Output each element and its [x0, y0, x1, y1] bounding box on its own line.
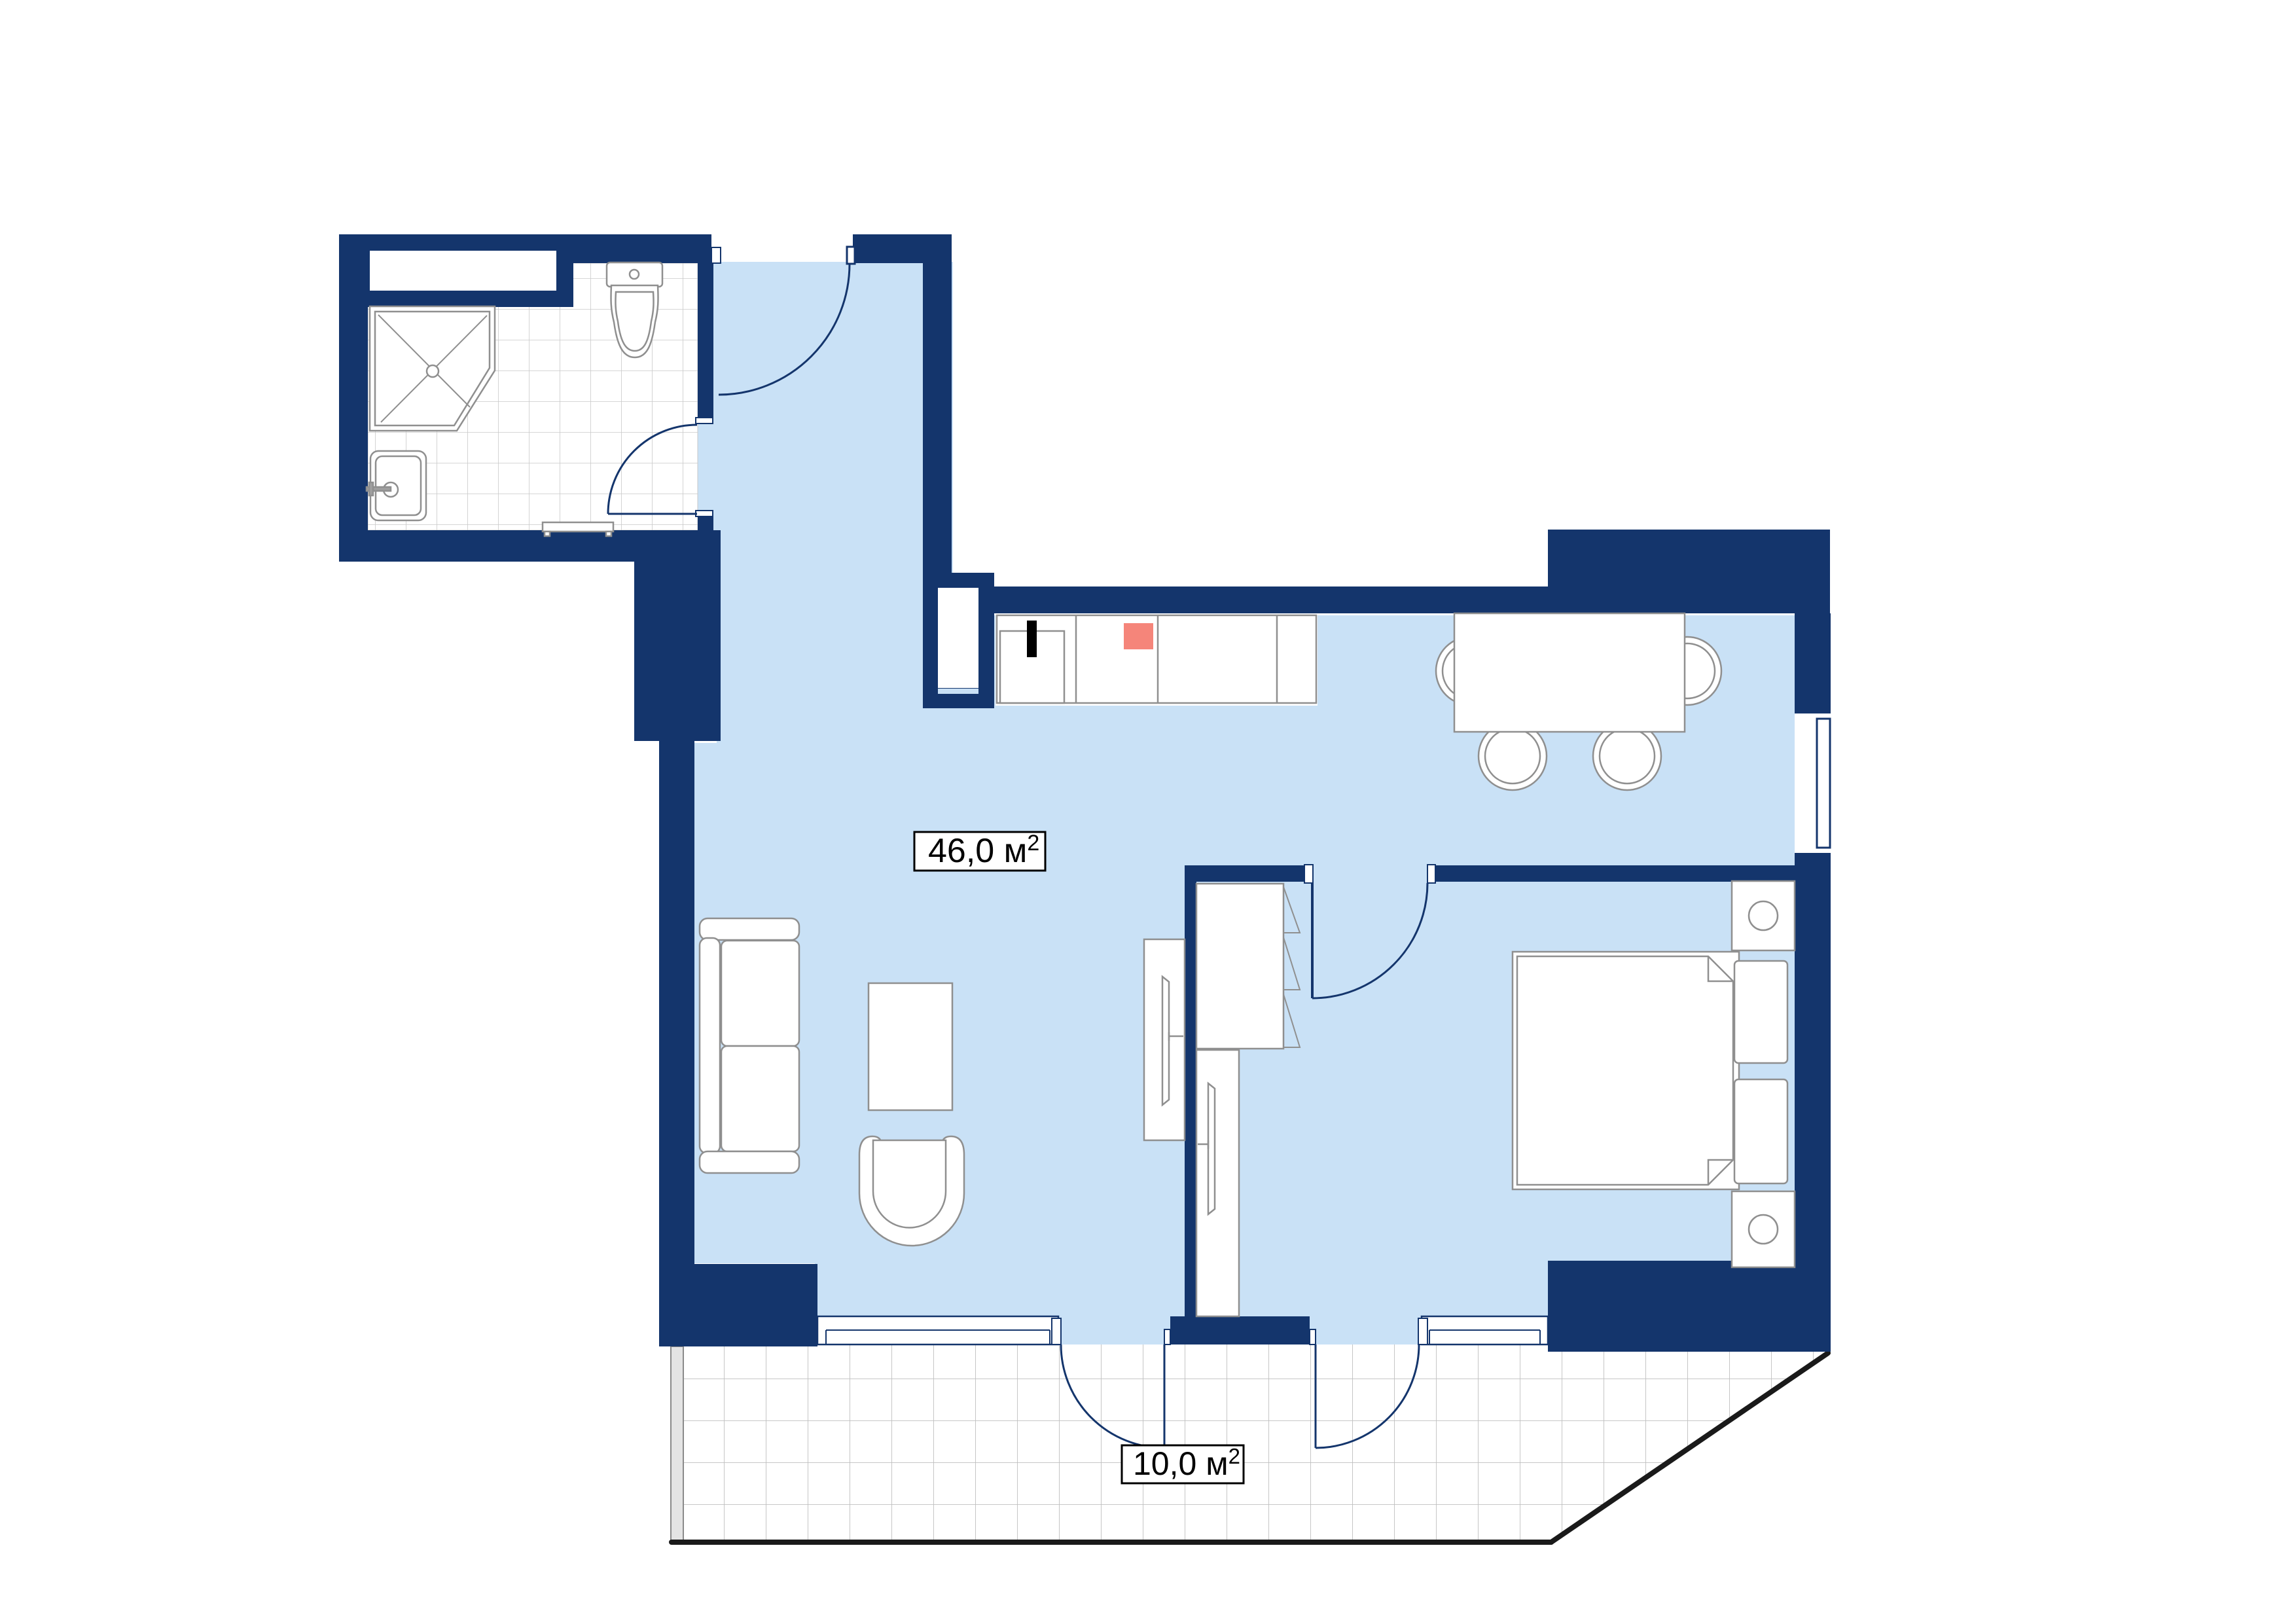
svg-text:10,0 м2: 10,0 м2: [1133, 1444, 1240, 1482]
svg-text:46,0 м2: 46,0 м2: [928, 831, 1039, 870]
